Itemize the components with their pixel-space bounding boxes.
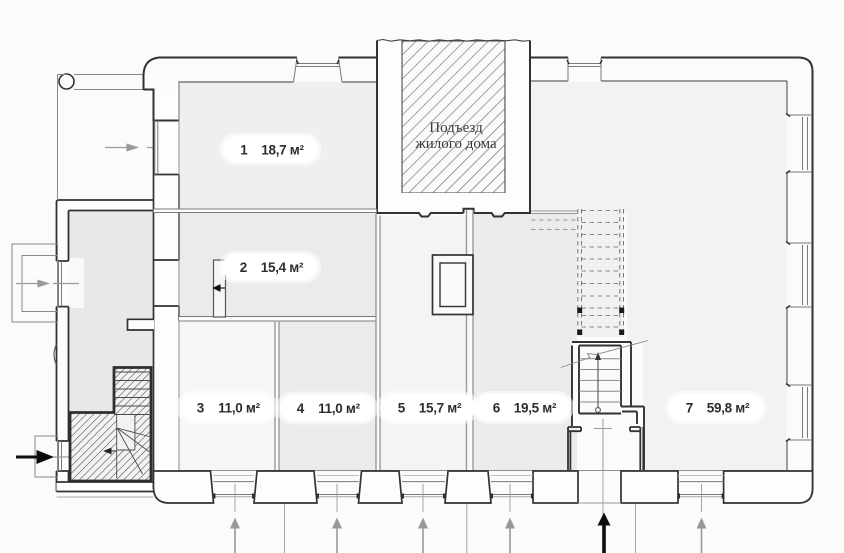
svg-text:15,7 м²: 15,7 м²: [419, 401, 462, 416]
svg-text:Подъезд: Подъезд: [429, 120, 483, 136]
svg-text:59,8 м²: 59,8 м²: [707, 401, 750, 416]
svg-text:3: 3: [197, 401, 205, 416]
svg-text:2: 2: [240, 260, 248, 275]
svg-text:15,4 м²: 15,4 м²: [261, 260, 304, 275]
svg-text:7: 7: [686, 401, 694, 416]
svg-text:19,5 м²: 19,5 м²: [514, 401, 557, 416]
svg-text:11,0 м²: 11,0 м²: [218, 401, 260, 416]
svg-text:11,0 м²: 11,0 м²: [318, 401, 360, 416]
svg-text:1: 1: [240, 142, 248, 157]
svg-text:4: 4: [297, 401, 305, 416]
svg-text:6: 6: [493, 401, 501, 416]
svg-text:5: 5: [398, 401, 406, 416]
svg-text:жилого дома: жилого дома: [414, 136, 497, 152]
svg-text:18,7 м²: 18,7 м²: [261, 142, 304, 157]
